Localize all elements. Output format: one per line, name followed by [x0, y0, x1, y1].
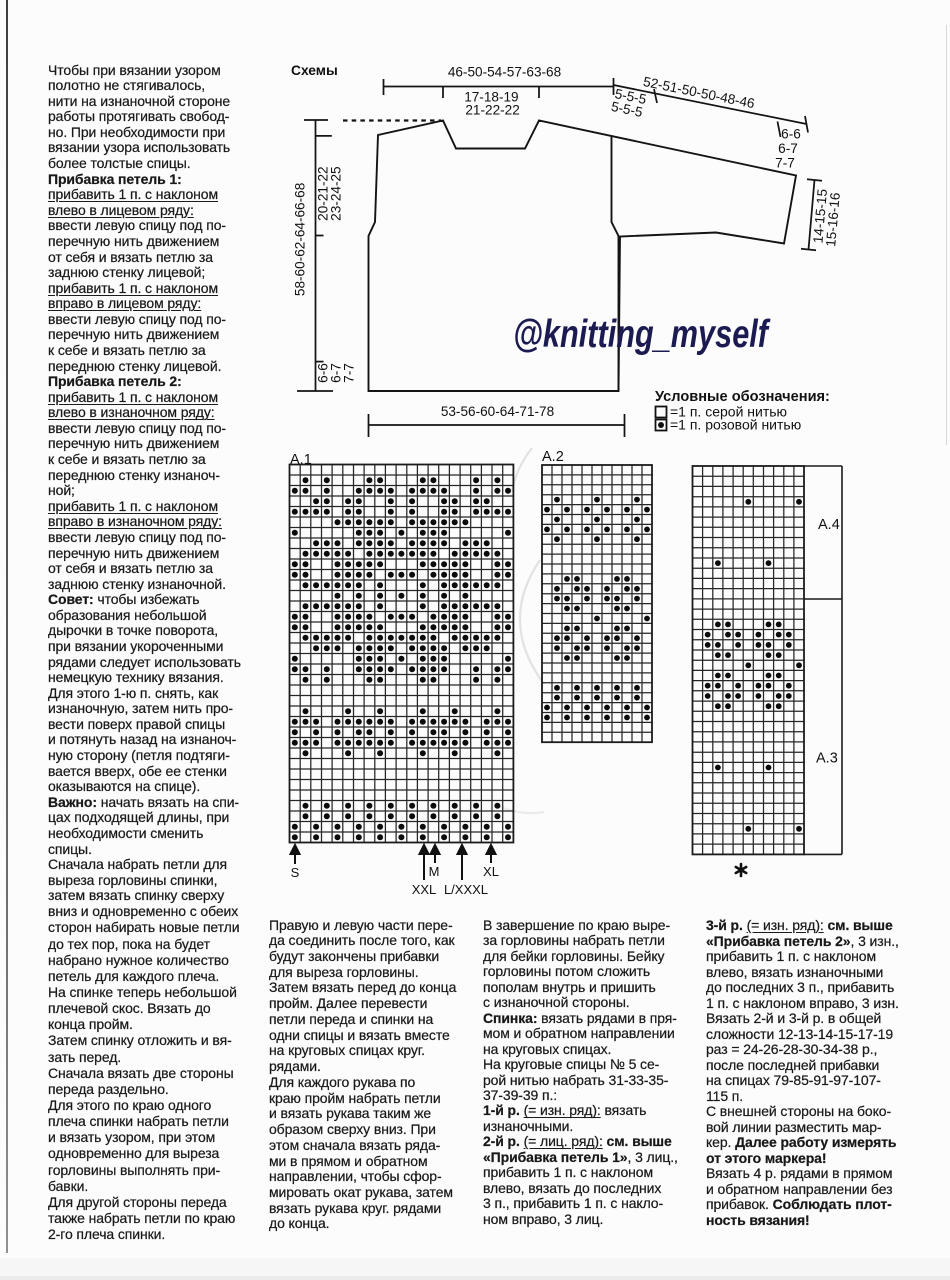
svg-text:23-24-25: 23-24-25	[329, 166, 344, 220]
svg-text:58-60-62-64-66-68: 58-60-62-64-66-68	[293, 183, 308, 296]
svg-text:A.3: A.3	[816, 751, 838, 767]
svg-text:6-7: 6-7	[778, 141, 798, 156]
svg-text:53-56-60-64-71-78: 53-56-60-64-71-78	[441, 404, 554, 419]
svg-text:21-22-22: 21-22-22	[465, 102, 519, 117]
svg-text:7-7: 7-7	[775, 156, 795, 171]
svg-text:Схемы: Схемы	[291, 63, 338, 78]
svg-text:A.1: A.1	[290, 452, 312, 468]
svg-text:7-7: 7-7	[342, 363, 357, 383]
svg-text:A.2: A.2	[542, 449, 564, 465]
svg-text:6-6: 6-6	[781, 127, 801, 142]
svg-text:XL: XL	[483, 864, 499, 879]
svg-text:L/XXXL: L/XXXL	[444, 882, 488, 897]
svg-text:XXL: XXL	[412, 882, 437, 897]
svg-text:@knitting_myself: @knitting_myself	[513, 313, 771, 356]
svg-text:A.4: A.4	[818, 517, 840, 533]
svg-text:46-50-54-57-63-68: 46-50-54-57-63-68	[448, 64, 561, 79]
svg-text:52-51-50-50-48-46: 52-51-50-50-48-46	[642, 74, 756, 111]
svg-text:S: S	[291, 865, 300, 880]
svg-text:=1 п. розовой нитью: =1 п. розовой нитью	[670, 417, 801, 433]
svg-text:M: M	[429, 864, 440, 879]
